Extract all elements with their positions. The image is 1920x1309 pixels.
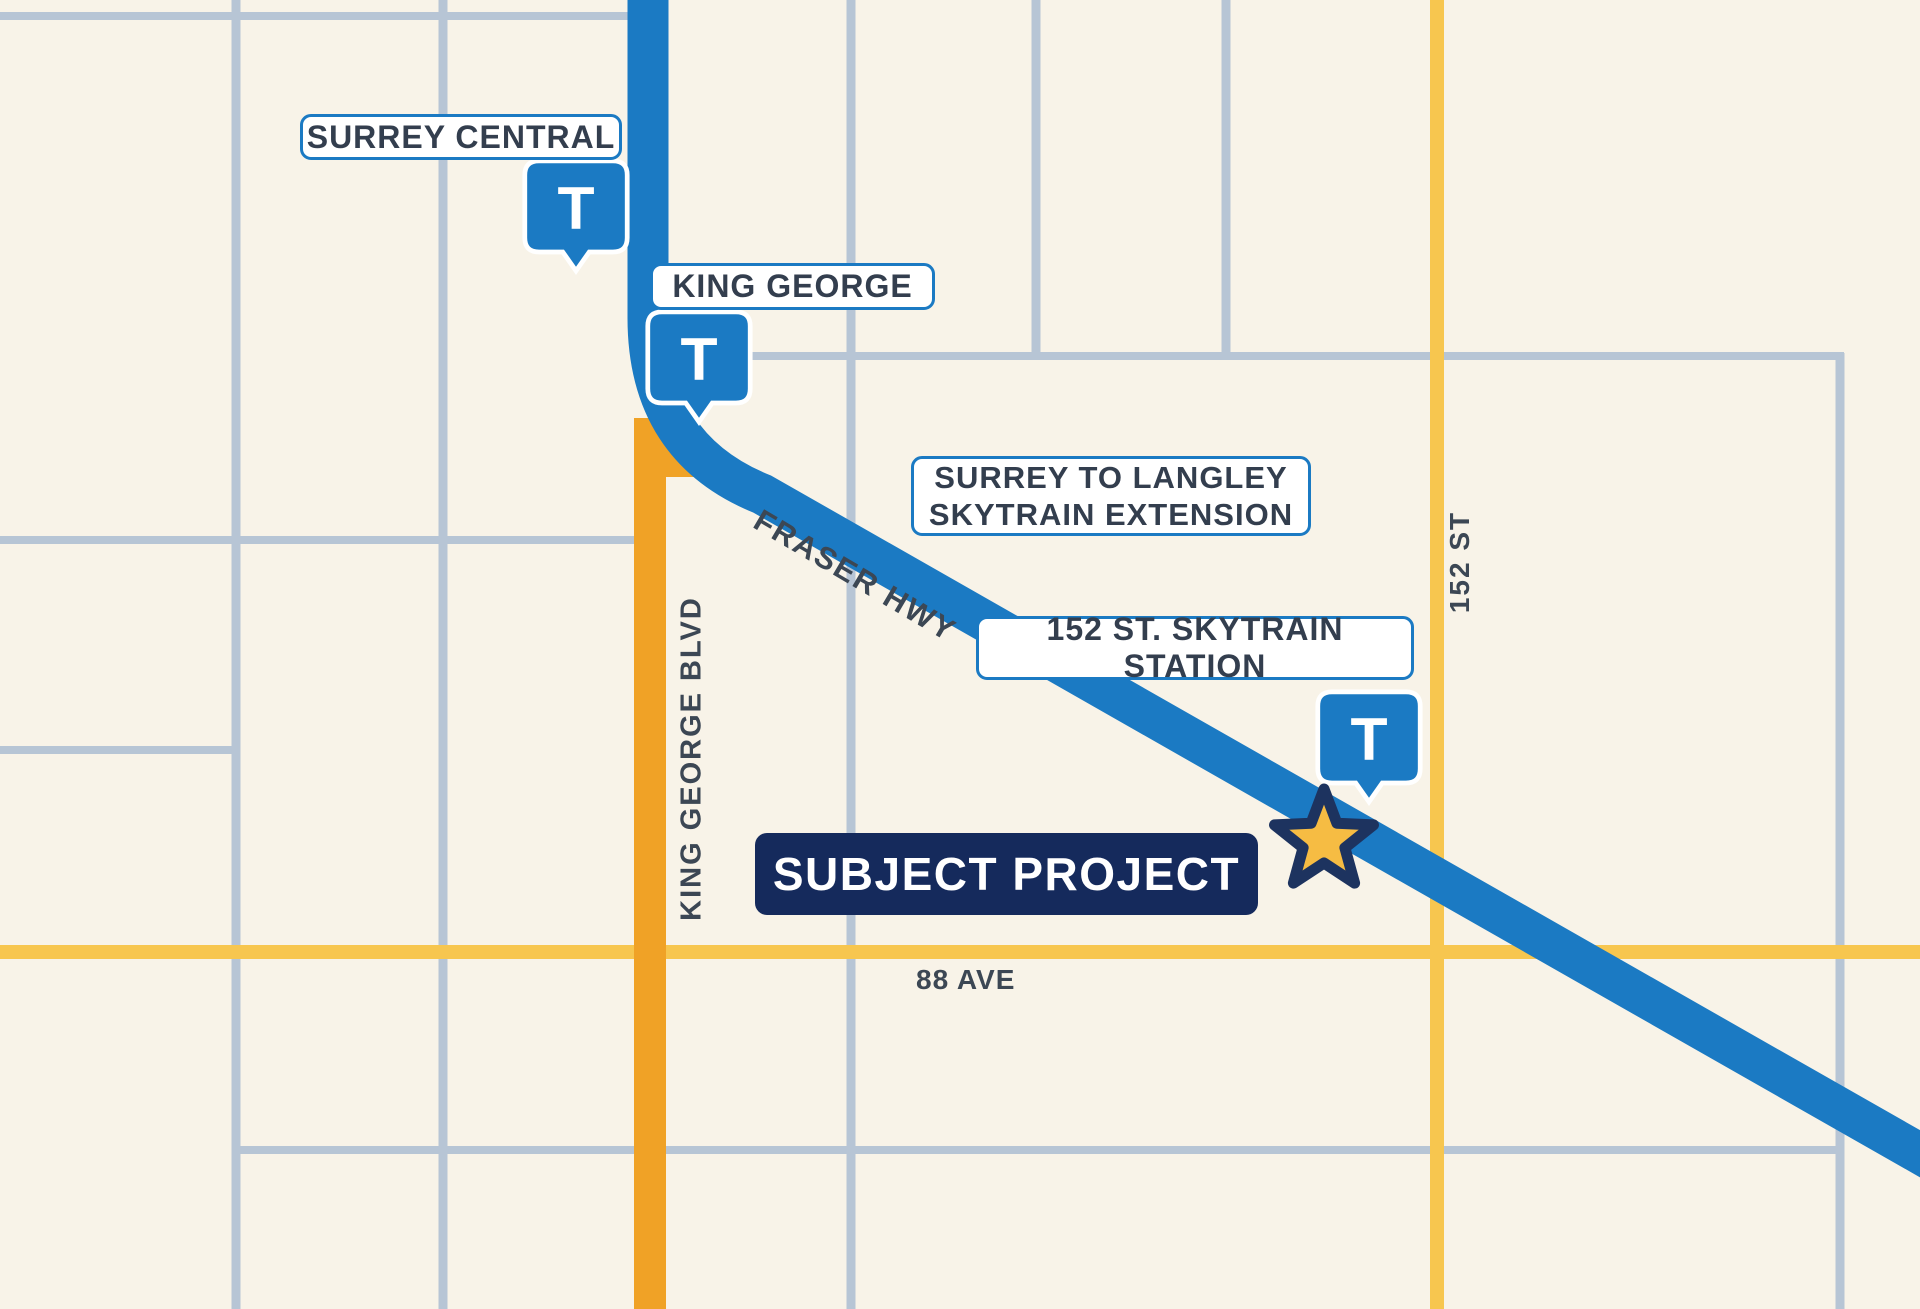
station-marker-king-george: T — [644, 308, 754, 441]
label-skytrain-extension: SURREY TO LANGLEY SKYTRAIN EXTENSION — [911, 456, 1311, 536]
street-label-152-st: 152 ST — [1444, 482, 1476, 642]
label-152-st-station: 152 ST. SKYTRAIN STATION — [976, 616, 1414, 680]
street-label-88-ave: 88 AVE — [916, 964, 1015, 996]
label-king-george: KING GEORGE — [650, 263, 935, 310]
transit-t-icon: T — [680, 325, 717, 393]
star-shape — [1275, 789, 1374, 883]
extension-line2: SKYTRAIN EXTENSION — [929, 497, 1293, 532]
street-grid — [0, 0, 1844, 1309]
street-label-king-george-blvd: KING GEORGE BLVD — [676, 559, 709, 959]
transit-map: FRASER HWY KING GEORGE BLVD 88 AVE 152 S… — [0, 0, 1920, 1309]
subject-project-badge: SUBJECT PROJECT — [755, 833, 1258, 915]
map-base-layer — [0, 0, 1920, 1309]
transit-t-icon: T — [1350, 705, 1387, 773]
extension-line1: SURREY TO LANGLEY — [934, 460, 1287, 495]
road-king-george-blvd — [634, 418, 666, 1309]
transit-t-icon: T — [557, 174, 594, 242]
star-icon — [1264, 781, 1384, 901]
label-surrey-central: SURREY CENTRAL — [300, 114, 622, 160]
station-marker-surrey-central: T — [521, 157, 631, 290]
